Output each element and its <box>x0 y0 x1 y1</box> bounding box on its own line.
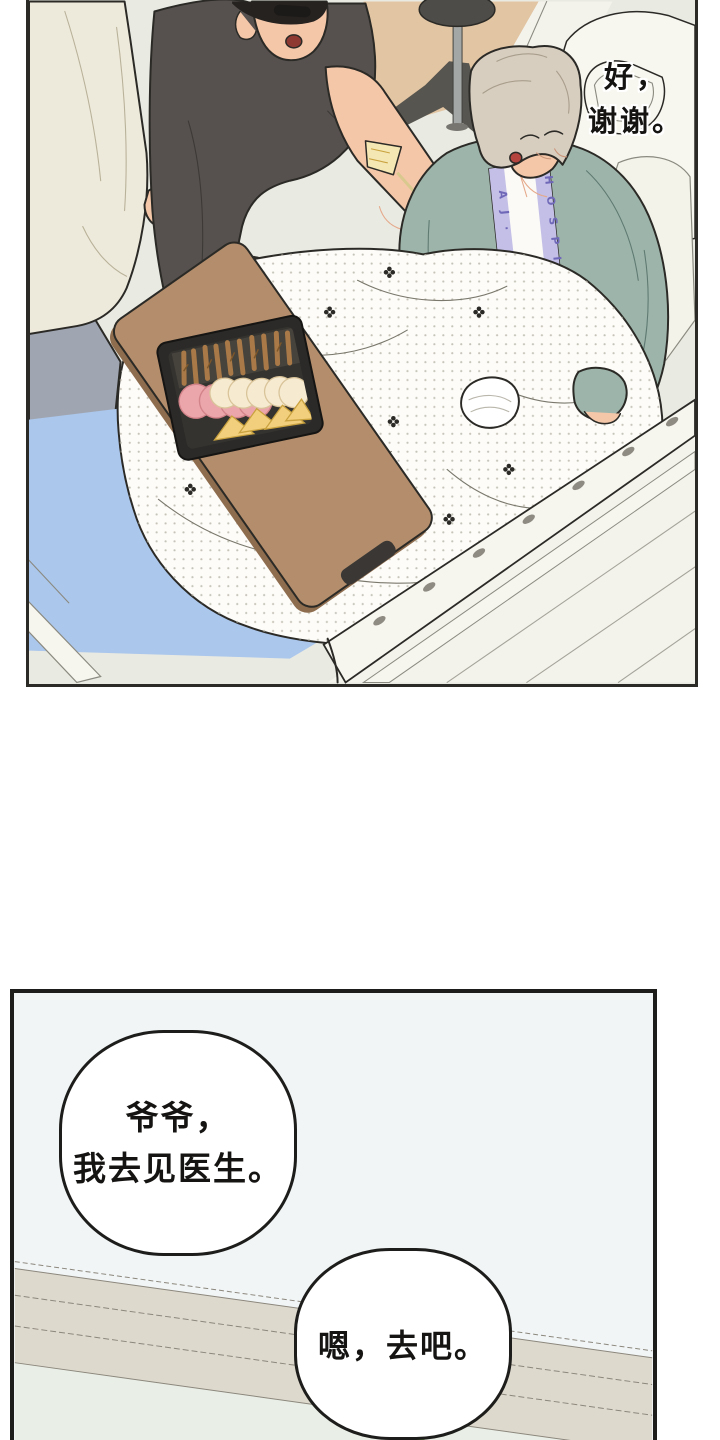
dialogue-line-2: 谢谢。 <box>563 100 698 144</box>
patient-mouth <box>510 152 522 163</box>
dialogue-line-1: 好， <box>563 56 698 100</box>
sleeve-cuff <box>573 368 626 420</box>
panel-2: 爷爷， 我去见医生。 嗯，去吧。 <box>10 989 657 1440</box>
bubble2-text: 嗯，去吧。 <box>318 1321 488 1367</box>
panel-1: A J · H O S P I T A L <box>26 0 698 687</box>
dialogue-caption: 好， 谢谢。 <box>563 56 698 143</box>
bubble1-line-2: 我去见医生。 <box>73 1143 283 1194</box>
bubble1-line-1: 爷爷， <box>73 1092 283 1143</box>
bandaged-hand <box>461 378 519 428</box>
caretaker-mouth <box>286 35 302 48</box>
speech-bubble-2: 嗯，去吧。 <box>294 1248 512 1440</box>
comic-page: A J · H O S P I T A L <box>0 0 720 1440</box>
speech-bubble-1: 爷爷， 我去见医生。 <box>59 1030 297 1256</box>
